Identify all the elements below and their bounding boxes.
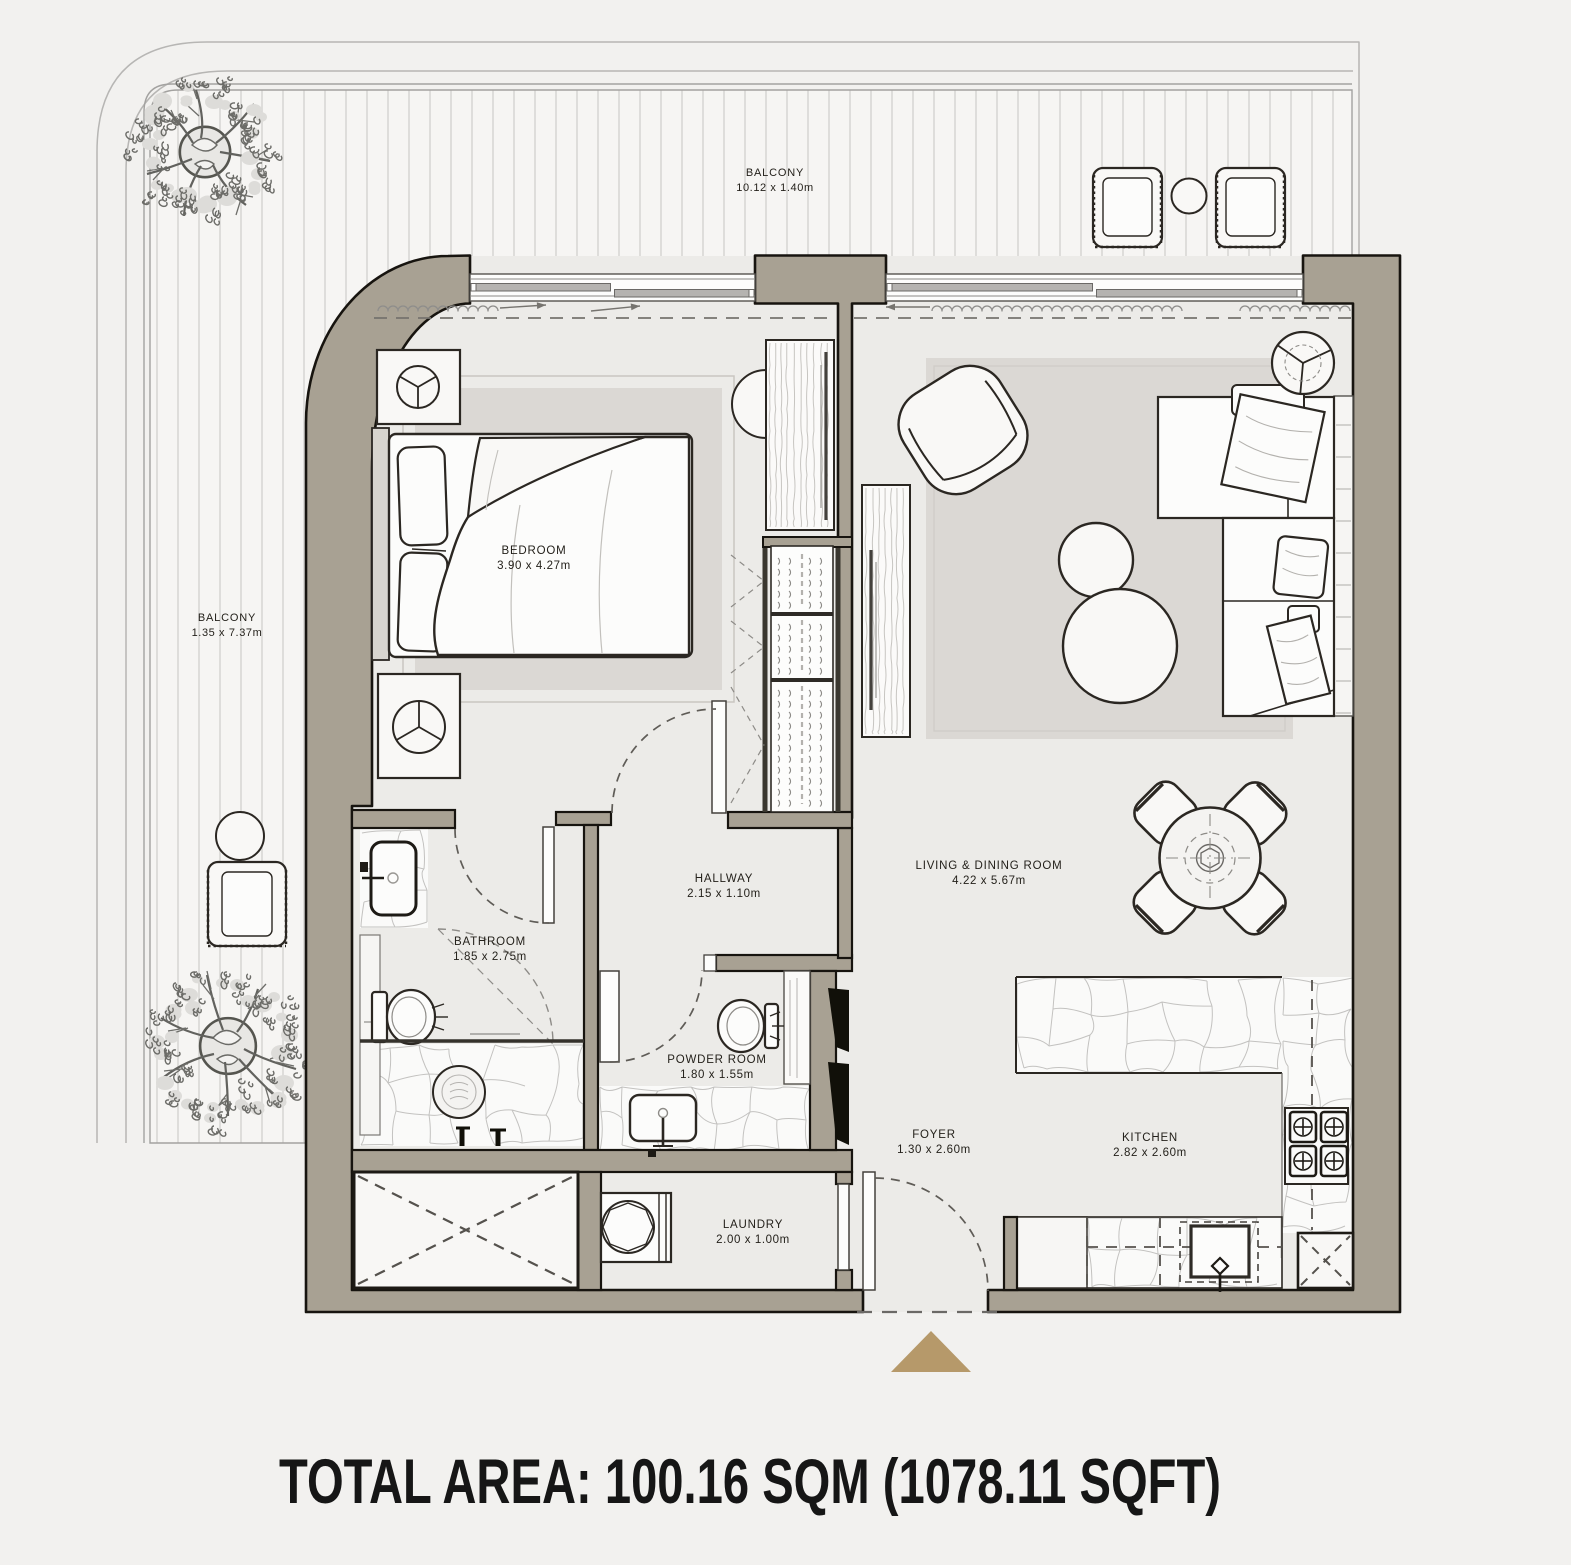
svg-text:LIVING & DINING ROOM: LIVING & DINING ROOM	[916, 860, 1063, 872]
svg-text:TOTAL AREA: 100.16 SQM (1078.1: TOTAL AREA: 100.16 SQM (1078.11 SQFT)	[279, 1447, 1221, 1517]
svg-text:10.12 x 1.40m: 10.12 x 1.40m	[736, 182, 814, 194]
svg-text:FOYER: FOYER	[912, 1129, 956, 1141]
svg-text:1.80 x 1.55m: 1.80 x 1.55m	[680, 1069, 754, 1081]
svg-text:2.82 x 2.60m: 2.82 x 2.60m	[1113, 1147, 1187, 1159]
svg-text:BATHROOM: BATHROOM	[454, 936, 526, 948]
svg-text:4.22 x 5.67m: 4.22 x 5.67m	[952, 875, 1026, 887]
svg-text:BALCONY: BALCONY	[746, 167, 804, 179]
svg-text:1.35 x 7.37m: 1.35 x 7.37m	[192, 627, 263, 639]
svg-text:1.30 x 2.60m: 1.30 x 2.60m	[897, 1144, 971, 1156]
svg-text:LAUNDRY: LAUNDRY	[723, 1219, 783, 1231]
svg-text:KITCHEN: KITCHEN	[1122, 1132, 1178, 1144]
svg-text:1.85 x 2.75m: 1.85 x 2.75m	[453, 951, 527, 963]
svg-text:POWDER ROOM: POWDER ROOM	[667, 1054, 767, 1066]
svg-text:BEDROOM: BEDROOM	[501, 545, 566, 557]
svg-text:2.15 x 1.10m: 2.15 x 1.10m	[687, 888, 761, 900]
svg-text:2.00 x 1.00m: 2.00 x 1.00m	[716, 1234, 790, 1246]
svg-text:BALCONY: BALCONY	[198, 612, 256, 624]
svg-text:HALLWAY: HALLWAY	[695, 873, 753, 885]
svg-text:3.90 x 4.27m: 3.90 x 4.27m	[497, 560, 571, 572]
